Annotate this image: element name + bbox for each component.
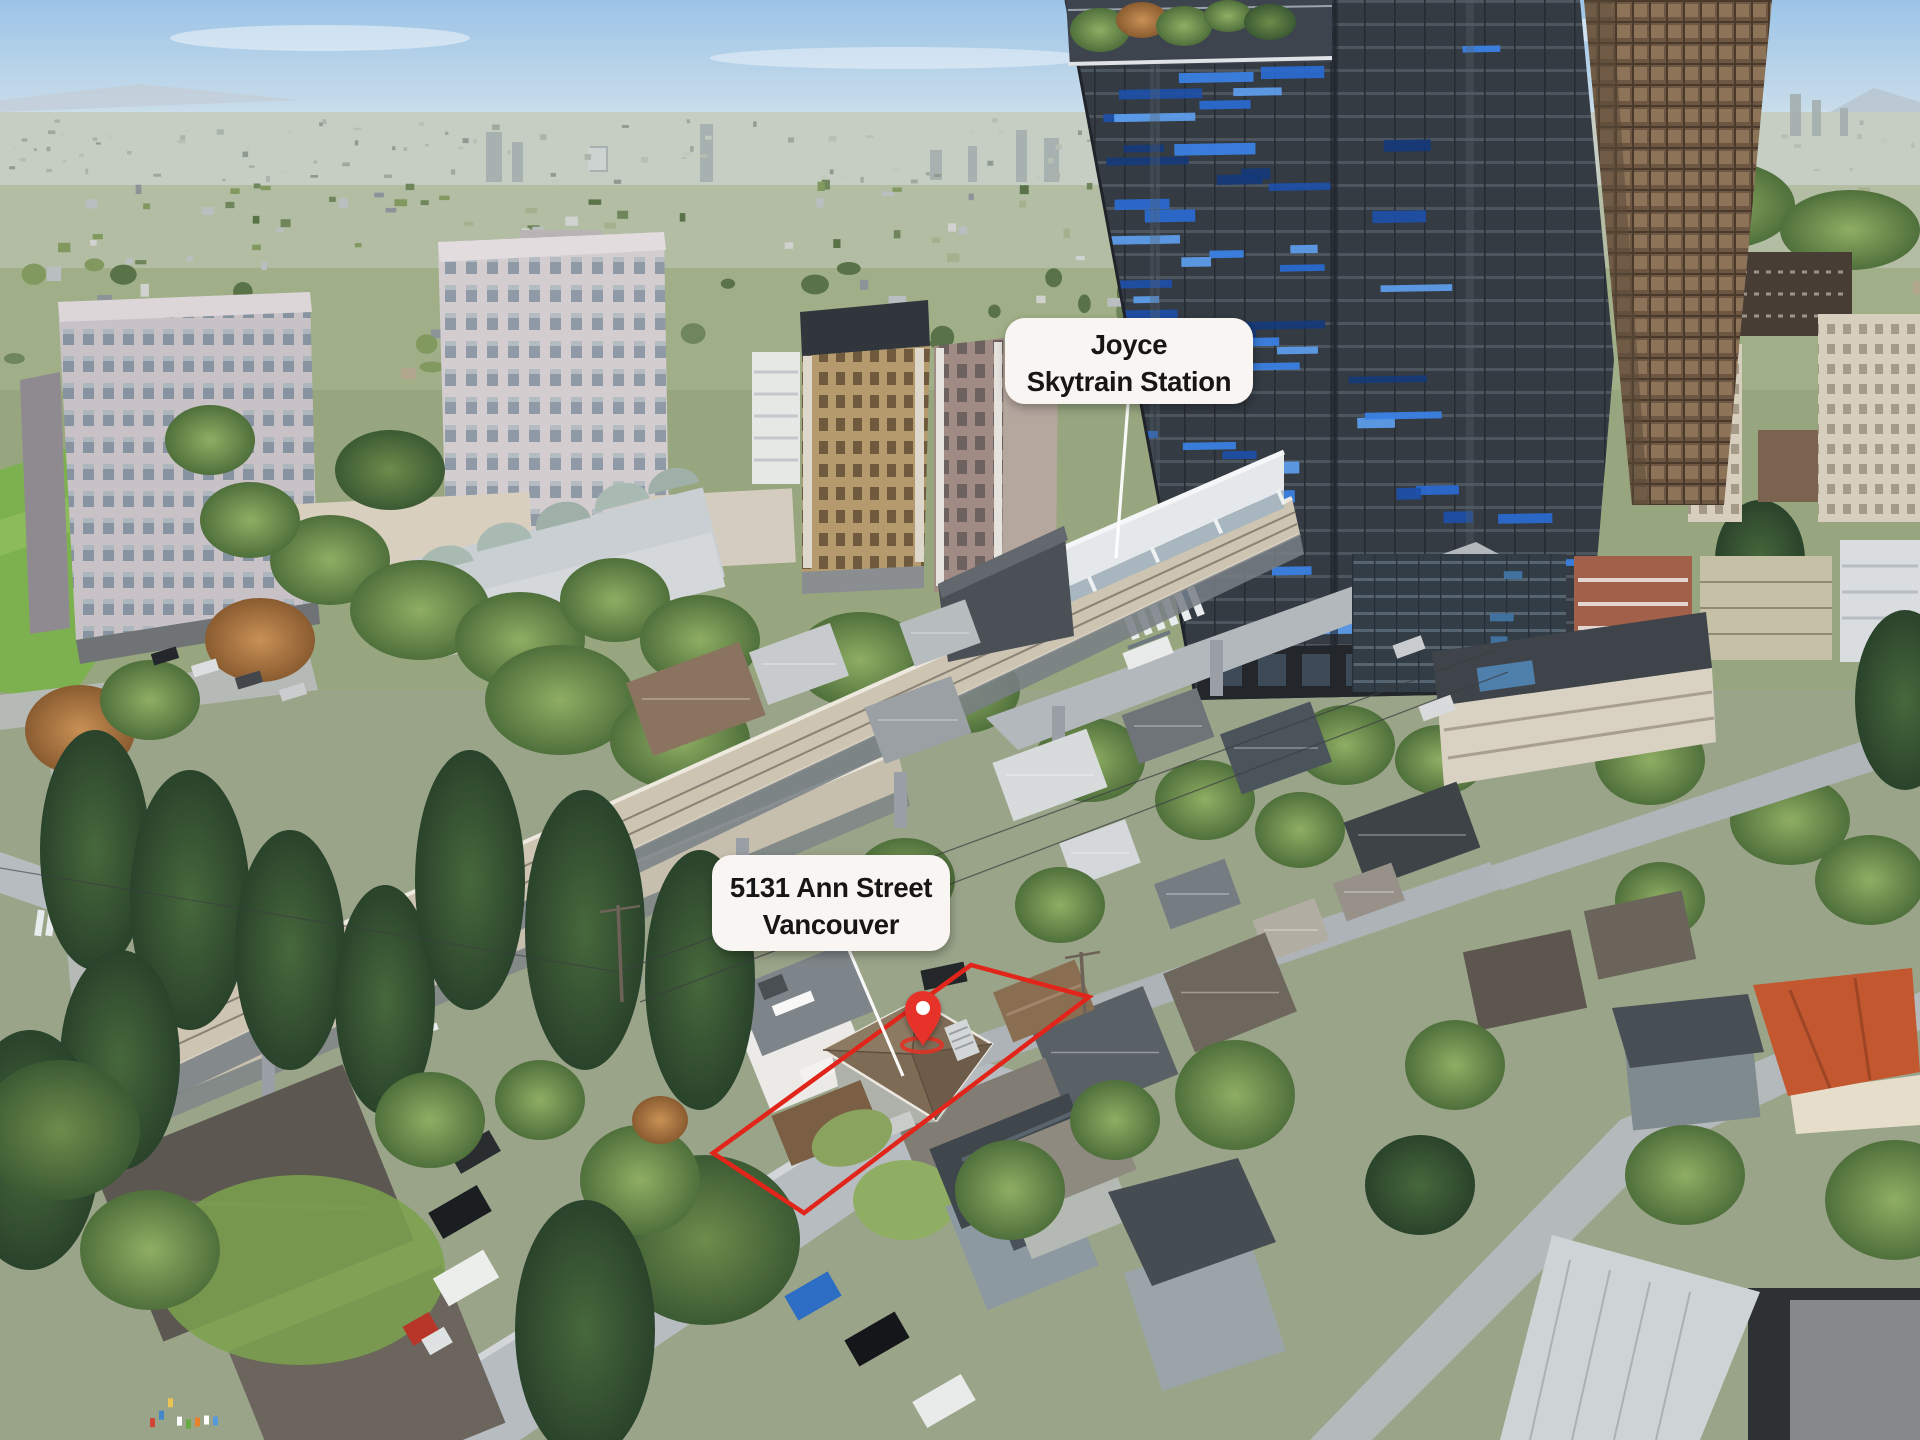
station-label: Joyce Skytrain Station xyxy=(1005,318,1253,404)
property-label-line2: Vancouver xyxy=(763,909,900,940)
property-label-line1: 5131 Ann Street xyxy=(730,872,932,903)
property-label: 5131 Ann Street Vancouver xyxy=(712,855,950,951)
station-label-line1: Joyce xyxy=(1091,329,1167,360)
aerial-photo: Joyce Skytrain Station 5131 Ann Street V… xyxy=(0,0,1920,1440)
aerial-scene: Joyce Skytrain Station 5131 Ann Street V… xyxy=(0,0,1920,1440)
station-label-line2: Skytrain Station xyxy=(1027,366,1232,397)
